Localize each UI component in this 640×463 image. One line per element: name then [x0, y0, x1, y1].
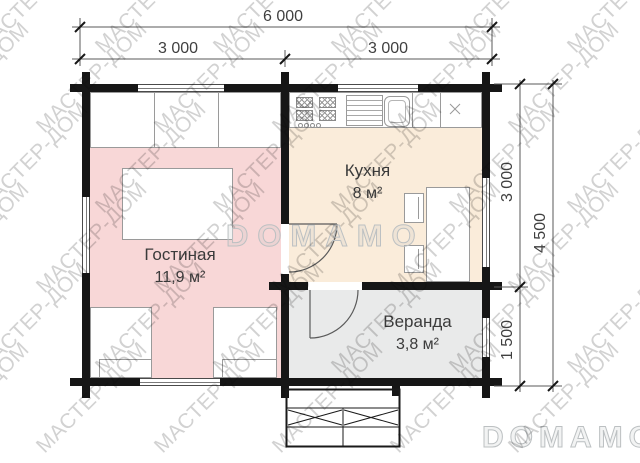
wardrobe-divider [218, 93, 219, 147]
log-end [281, 386, 289, 398]
living-room-label: Гостиная 11,9 м² [110, 246, 250, 286]
room-name: Кухня [300, 162, 435, 179]
room-name: Гостиная [110, 246, 250, 263]
log-end [82, 72, 90, 84]
entrance-steps [287, 390, 400, 448]
chair-back [418, 249, 419, 269]
brand-watermark-text: МАСТЕР-ДОМ [0, 178, 34, 298]
kitchen-sink [384, 96, 410, 127]
brand-watermark-text: МАСТЕР-ДОМ [504, 18, 624, 138]
room-area: 11,9 м² [110, 270, 250, 286]
stove-knob [304, 123, 309, 128]
brand-watermark-text: МАСТЕР-ДОМ [445, 0, 565, 58]
brand-watermark-text: МАСТЕР-ДОМ [0, 98, 93, 218]
bed [213, 307, 277, 378]
brand-watermark-text: МАСТЕР-ДОМ [0, 0, 93, 58]
wardrobe [90, 92, 281, 148]
living-table [122, 168, 233, 240]
dim-width-left: 3 000 [138, 40, 218, 58]
kitchen-veranda-door-opening [308, 282, 362, 290]
log-end [392, 386, 400, 396]
brand-watermark-text: МАСТЕР-ДОМ [0, 18, 34, 138]
brand-watermark-text: МАСТЕР-ДОМ [563, 98, 640, 218]
brand-watermark-text: МАСТЕР-ДОМ [0, 338, 34, 458]
log-end [269, 282, 281, 290]
floor-plan-canvas: Гостиная 11,9 м² Кухня 8 м² Веранда 3,8 … [0, 0, 640, 463]
stove-burner [296, 97, 313, 108]
bed-pillow [99, 359, 151, 377]
log-end [281, 72, 289, 84]
dim-width-right: 3 000 [348, 40, 428, 58]
kitchen-top-window [338, 84, 418, 92]
living-top-window [138, 84, 224, 92]
counter-divider [412, 92, 413, 128]
wardrobe-divider [154, 93, 155, 147]
bed-pillow [222, 359, 276, 377]
log-end [490, 84, 502, 92]
brand-watermark-text: МАСТЕР-ДОМ [563, 0, 640, 58]
stove-knob [310, 123, 315, 128]
chair [404, 245, 424, 273]
sink-drainboard [346, 95, 383, 126]
stove-knob [298, 123, 303, 128]
dim-height-total: 4 500 [532, 193, 550, 273]
counter-divider [440, 92, 441, 128]
log-end [482, 386, 490, 398]
dim-height-top: 3 000 [499, 142, 517, 222]
living-kitchen-door-opening [281, 224, 289, 274]
log-end [82, 386, 90, 398]
log-end [70, 84, 82, 92]
log-end [70, 378, 82, 386]
room-area: 3,8 м² [350, 337, 485, 353]
kitchen-label: Кухня 8 м² [300, 162, 435, 202]
log-end [490, 282, 502, 290]
living-left-window [82, 197, 90, 273]
dim-width-total: 6 000 [243, 8, 323, 26]
stove [292, 94, 344, 128]
logo-watermark-bottom: DOMAMO [482, 421, 640, 455]
brand-watermark-text: МАСТЕР-ДОМ [504, 338, 624, 458]
room-name: Веранда [350, 313, 485, 330]
kitchen-right-window [482, 178, 490, 267]
veranda-label: Веранда 3,8 м² [350, 313, 485, 353]
bed [90, 307, 152, 378]
brand-watermark-text: МАСТЕР-ДОМ [504, 178, 624, 298]
brand-watermark-text: МАСТЕР-ДОМ [0, 258, 93, 378]
brand-watermark-text: МАСТЕР-ДОМ [563, 258, 640, 378]
stove-knob [316, 123, 321, 128]
room-area: 8 м² [300, 186, 435, 202]
stove-burner [319, 110, 336, 121]
log-end [482, 72, 490, 84]
sink-basin [388, 100, 406, 123]
stove-burner [319, 97, 336, 108]
dim-height-bottom: 1 500 [499, 300, 517, 380]
stove-burner [296, 110, 313, 121]
living-bottom-window [140, 378, 220, 386]
